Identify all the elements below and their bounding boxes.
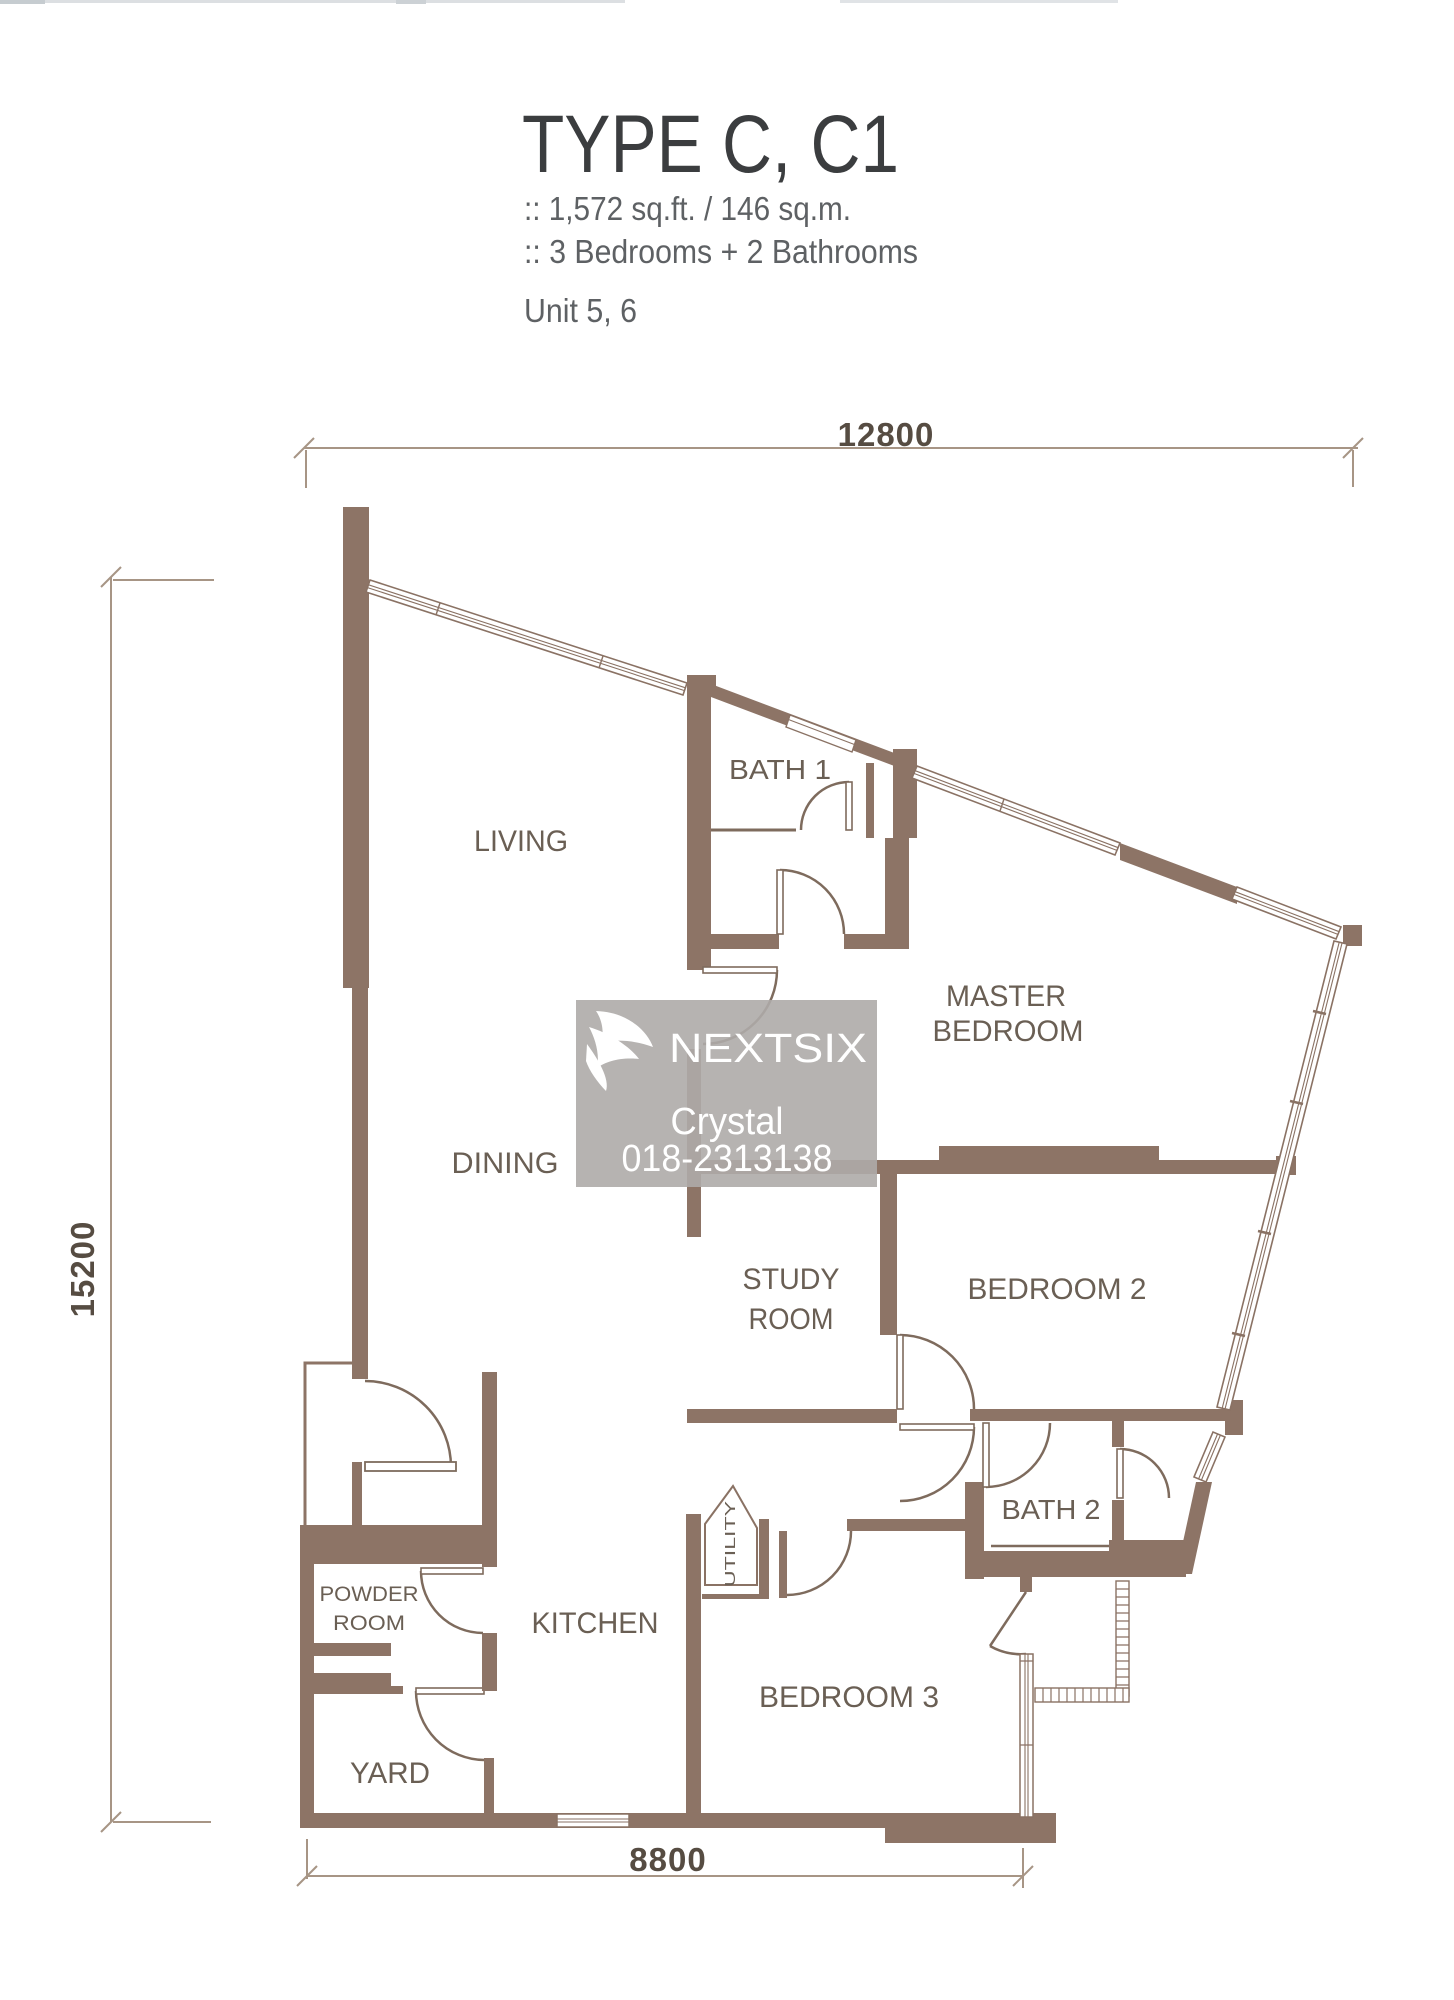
- svg-text:8800: 8800: [629, 1841, 706, 1878]
- svg-text:DINING: DINING: [452, 1147, 559, 1180]
- svg-text:Unit 5, 6: Unit 5, 6: [524, 292, 637, 329]
- svg-text:BEDROOM: BEDROOM: [933, 1015, 1084, 1048]
- svg-text:15200: 15200: [64, 1221, 101, 1318]
- svg-text:STUDY: STUDY: [743, 1263, 840, 1296]
- svg-text::: 3 Bedrooms + 2 Bathrooms: :: 3 Bedrooms + 2 Bathrooms: [524, 233, 918, 270]
- svg-text:ROOM: ROOM: [749, 1303, 834, 1336]
- svg-text:TYPE C, C1: TYPE C, C1: [522, 99, 899, 190]
- svg-text:NEXTSIX: NEXTSIX: [669, 1025, 867, 1071]
- svg-text:BATH 1: BATH 1: [729, 754, 831, 785]
- svg-text:MASTER: MASTER: [946, 980, 1066, 1013]
- svg-text:Crystal: Crystal: [671, 1101, 784, 1143]
- svg-text:BEDROOM 3: BEDROOM 3: [759, 1681, 939, 1714]
- svg-text:ROOM: ROOM: [333, 1612, 405, 1635]
- svg-text::: 1,572 sq.ft. / 146 sq.m.: :: 1,572 sq.ft. / 146 sq.m.: [524, 190, 851, 227]
- svg-text:018-2313138: 018-2313138: [622, 1138, 833, 1180]
- svg-text:12800: 12800: [838, 416, 935, 453]
- svg-text:LIVING: LIVING: [474, 825, 568, 858]
- svg-text:BATH 2: BATH 2: [1002, 1494, 1101, 1525]
- svg-text:KITCHEN: KITCHEN: [532, 1607, 659, 1640]
- svg-text:POWDER: POWDER: [320, 1583, 419, 1606]
- svg-text:YARD: YARD: [350, 1757, 430, 1790]
- svg-text:BEDROOM 2: BEDROOM 2: [968, 1273, 1147, 1306]
- svg-text:UTILITY: UTILITY: [722, 1501, 739, 1587]
